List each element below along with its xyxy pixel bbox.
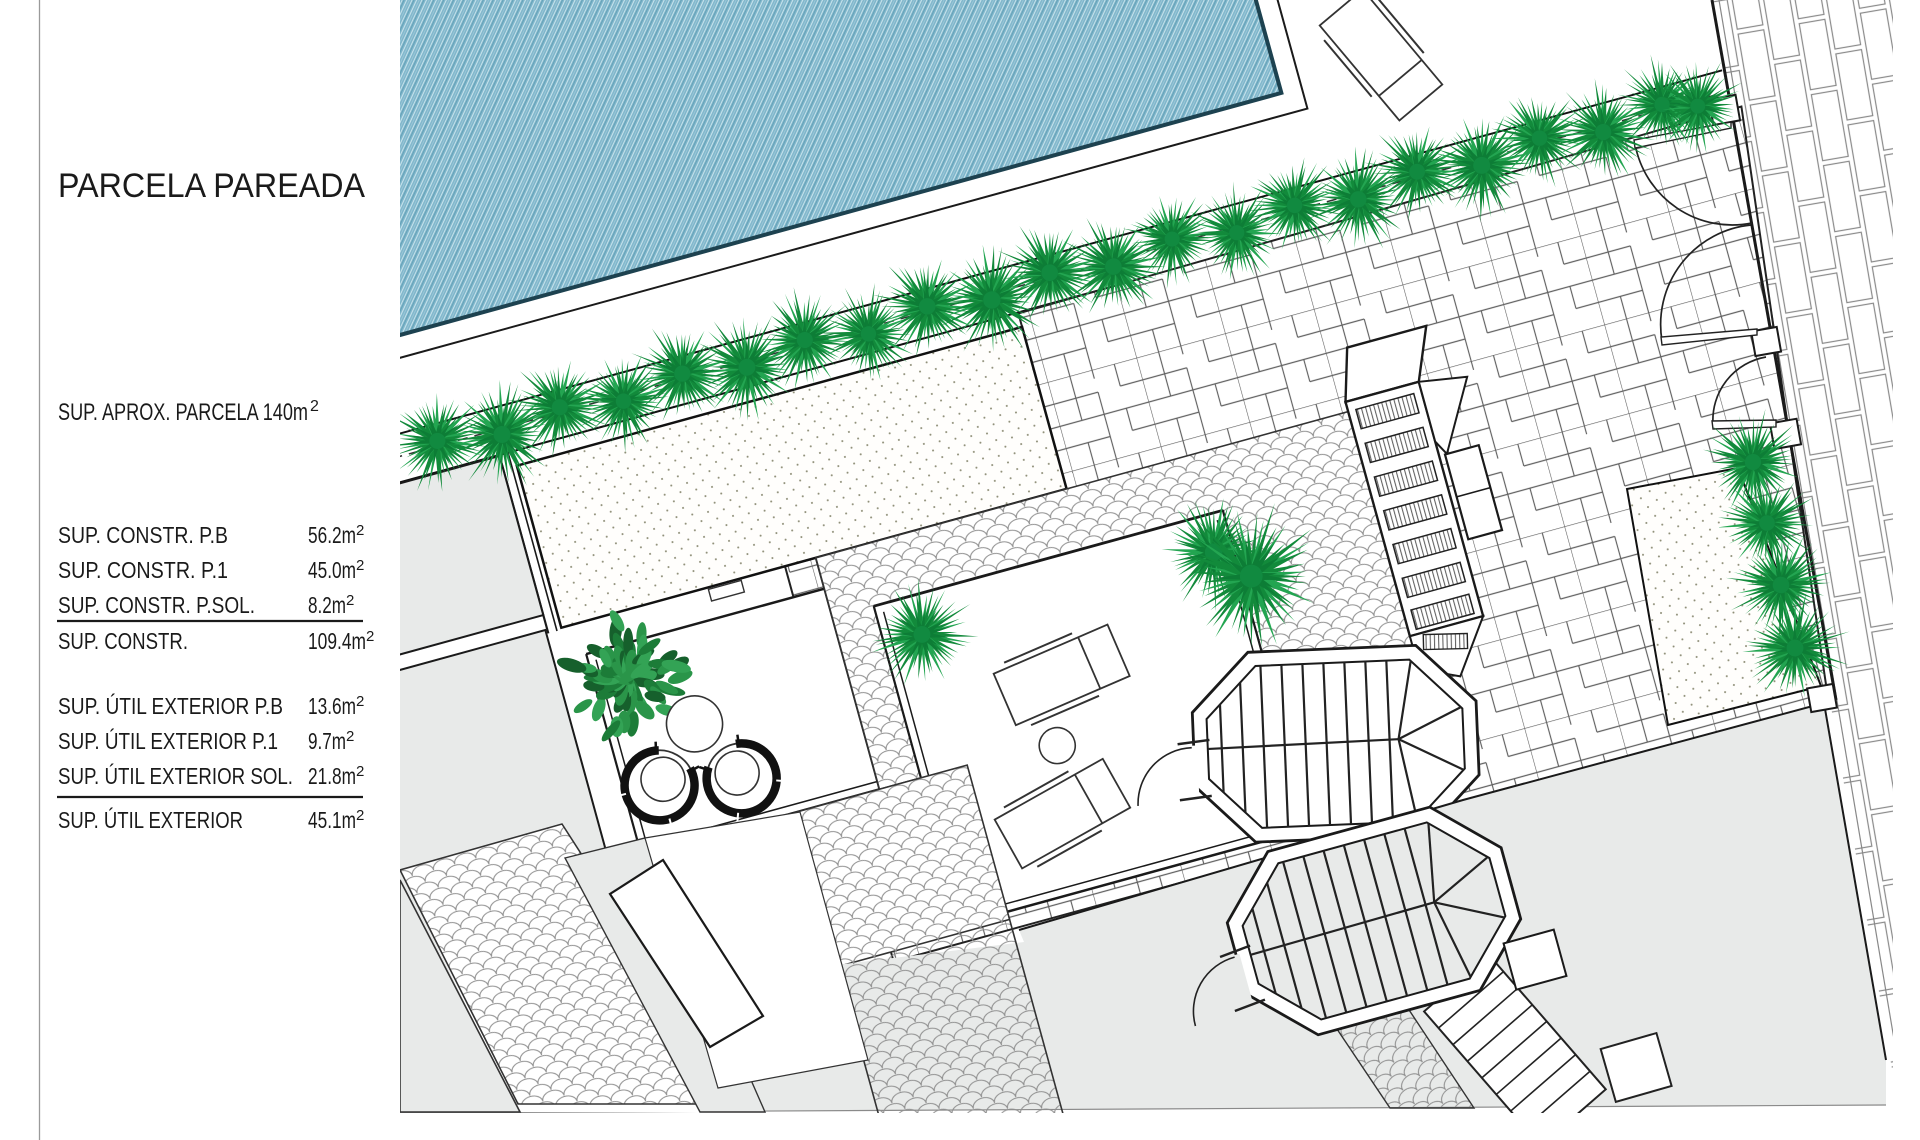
svg-text:SUP. CONSTR. P.SOL.: SUP. CONSTR. P.SOL. (58, 592, 255, 618)
svg-text:2: 2 (356, 693, 364, 710)
svg-text:2: 2 (366, 628, 374, 645)
svg-text:SUP. ÚTIL EXTERIOR: SUP. ÚTIL EXTERIOR (58, 807, 243, 833)
svg-text:SUP. ÚTIL EXTERIOR P.1: SUP. ÚTIL EXTERIOR P.1 (58, 728, 278, 754)
svg-text:SUP. CONSTR. P.1: SUP. CONSTR. P.1 (58, 557, 228, 583)
svg-text:45.1m: 45.1m (308, 807, 356, 833)
svg-text:45.0m: 45.0m (308, 557, 356, 583)
svg-text:2: 2 (356, 522, 364, 539)
svg-text:SUP. CONSTR. P.B: SUP. CONSTR. P.B (58, 522, 228, 548)
svg-text:13.6m: 13.6m (308, 693, 356, 719)
svg-text:2: 2 (310, 398, 319, 415)
svg-text:9.7m: 9.7m (308, 728, 346, 754)
svg-text:2: 2 (356, 807, 364, 824)
svg-text:2: 2 (346, 592, 354, 609)
svg-text:SUP. APROX. PARCELA 140m: SUP. APROX. PARCELA 140m (58, 399, 308, 426)
svg-text:21.8m: 21.8m (308, 763, 356, 789)
svg-text:56.2m: 56.2m (308, 522, 356, 548)
svg-text:PARCELA PAREADA: PARCELA PAREADA (58, 167, 365, 205)
svg-text:2: 2 (356, 557, 364, 574)
svg-text:109.4m: 109.4m (308, 628, 366, 654)
svg-text:SUP. CONSTR.: SUP. CONSTR. (58, 628, 188, 654)
svg-text:2: 2 (346, 728, 354, 745)
svg-text:SUP. ÚTIL EXTERIOR SOL.: SUP. ÚTIL EXTERIOR SOL. (58, 763, 293, 789)
svg-text:8.2m: 8.2m (308, 592, 346, 618)
svg-text:SUP. ÚTIL EXTERIOR P.B: SUP. ÚTIL EXTERIOR P.B (58, 693, 283, 719)
svg-text:2: 2 (356, 763, 364, 780)
